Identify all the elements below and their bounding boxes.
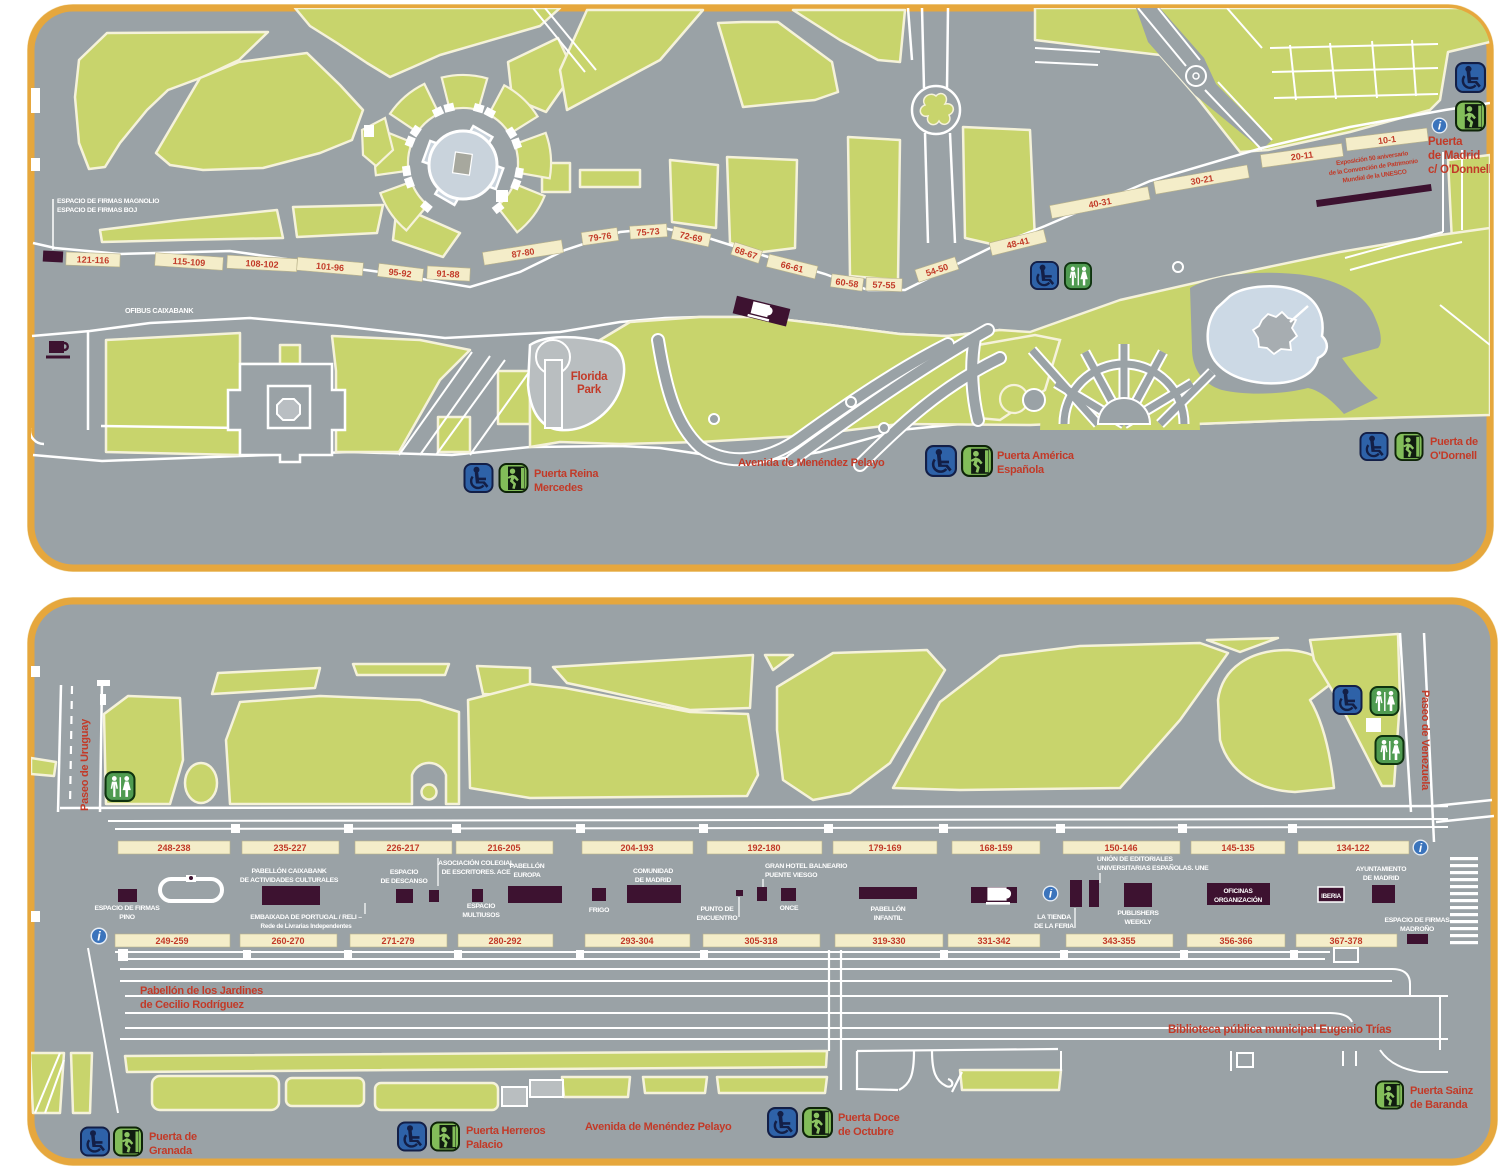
svg-text:Paseo de Venezuela: Paseo de Venezuela	[1419, 690, 1431, 791]
svg-text:Puerta Herreros: Puerta Herreros	[466, 1125, 546, 1137]
svg-text:DE MADRID: DE MADRID	[635, 877, 672, 884]
svg-text:226-217: 226-217	[386, 843, 419, 853]
svg-text:PABELLÓN CAIXABANK: PABELLÓN CAIXABANK	[251, 866, 326, 875]
svg-text:Florida: Florida	[571, 371, 608, 383]
svg-text:LA TIENDA: LA TIENDA	[1037, 914, 1071, 921]
svg-text:305-318: 305-318	[744, 936, 777, 946]
svg-text:179-169: 179-169	[868, 843, 901, 853]
svg-text:319-330: 319-330	[872, 936, 905, 946]
svg-text:280-292: 280-292	[488, 936, 521, 946]
svg-text:134-122: 134-122	[1336, 843, 1369, 853]
svg-text:c/ O'Donnell: c/ O'Donnell	[1428, 164, 1492, 176]
svg-text:de Baranda: de Baranda	[1410, 1099, 1469, 1111]
svg-text:192-180: 192-180	[747, 843, 780, 853]
svg-text:ESPACIO: ESPACIO	[390, 869, 418, 876]
svg-text:367-378: 367-378	[1329, 936, 1362, 946]
svg-text:ESPACIO DE FIRMAS BOJ: ESPACIO DE FIRMAS BOJ	[57, 207, 137, 214]
svg-text:DE LA FERIA: DE LA FERIA	[1034, 923, 1074, 930]
svg-text:DE ESCRITORES. ACE: DE ESCRITORES. ACE	[442, 869, 511, 876]
svg-text:DE DESCANSO: DE DESCANSO	[380, 878, 427, 885]
svg-text:ESPACIO DE FIRMAS: ESPACIO DE FIRMAS	[1384, 917, 1450, 924]
svg-text:EUROPA: EUROPA	[513, 872, 540, 879]
svg-text:ESPACIO: ESPACIO	[467, 903, 495, 910]
svg-text:Mercedes: Mercedes	[534, 482, 583, 494]
svg-text:293-304: 293-304	[620, 936, 653, 946]
svg-text:Park: Park	[577, 384, 602, 396]
svg-text:Puerta de: Puerta de	[1430, 436, 1478, 448]
svg-text:ONCE: ONCE	[780, 905, 799, 912]
svg-text:PUENTE VIESGO: PUENTE VIESGO	[765, 872, 817, 879]
svg-text:Puerta América: Puerta América	[997, 450, 1075, 462]
svg-text:OFIBUS CAIXABANK: OFIBUS CAIXABANK	[125, 306, 194, 315]
svg-text:121-116: 121-116	[77, 254, 110, 265]
svg-text:PUNTO DE: PUNTO DE	[701, 906, 735, 913]
svg-text:O'Dornell: O'Dornell	[1430, 450, 1477, 462]
svg-text:260-270: 260-270	[271, 936, 304, 946]
svg-text:75-73: 75-73	[636, 226, 660, 238]
svg-text:GRAN HOTEL BALNEARIO: GRAN HOTEL BALNEARIO	[765, 863, 847, 870]
svg-text:UNIVERSITARIAS ESPAÑOLAS. UNE: UNIVERSITARIAS ESPAÑOLAS. UNE	[1097, 863, 1209, 872]
svg-text:249-259: 249-259	[155, 936, 188, 946]
svg-text:PABELLÓN: PABELLÓN	[871, 904, 906, 913]
svg-text:Biblioteca pública municipal E: Biblioteca pública municipal Eugenio Trí…	[1168, 1024, 1391, 1036]
svg-text:168-159: 168-159	[979, 843, 1012, 853]
svg-text:271-279: 271-279	[381, 936, 414, 946]
svg-text:MADROÑO: MADROÑO	[1400, 924, 1434, 933]
svg-text:Paseo de Uruguay: Paseo de Uruguay	[79, 718, 91, 811]
svg-text:Puerta Doce: Puerta Doce	[838, 1112, 900, 1124]
svg-text:PINO: PINO	[119, 914, 135, 921]
svg-text:91-88: 91-88	[436, 268, 460, 279]
svg-text:ASOCIACIÓN COLEGIAL: ASOCIACIÓN COLEGIAL	[438, 858, 514, 867]
svg-text:ESPACIO DE FIRMAS MAGNOLIO: ESPACIO DE FIRMAS MAGNOLIO	[57, 198, 159, 205]
svg-text:UNIÓN DE EDITORIALES: UNIÓN DE EDITORIALES	[1097, 854, 1173, 863]
svg-text:216-205: 216-205	[487, 843, 520, 853]
svg-text:PUBLISHERS: PUBLISHERS	[1117, 910, 1159, 917]
svg-text:Puerta de: Puerta de	[149, 1131, 197, 1143]
svg-text:AYUNTAMIENTO: AYUNTAMIENTO	[1356, 866, 1407, 873]
svg-text:108-102: 108-102	[245, 258, 279, 270]
svg-text:343-355: 343-355	[1102, 936, 1135, 946]
svg-text:de Cecilio Rodríguez: de Cecilio Rodríguez	[140, 999, 245, 1011]
svg-text:DE MADRID: DE MADRID	[1363, 875, 1400, 882]
svg-text:Puerta Reina: Puerta Reina	[534, 468, 599, 480]
svg-text:Puerta Sainz: Puerta Sainz	[1410, 1085, 1474, 1097]
svg-text:235-227: 235-227	[273, 843, 306, 853]
svg-text:ORGANIZACIÓN: ORGANIZACIÓN	[1214, 895, 1262, 904]
svg-text:248-238: 248-238	[157, 843, 190, 853]
svg-text:Granada: Granada	[149, 1145, 193, 1157]
svg-text:356-366: 356-366	[1219, 936, 1252, 946]
svg-text:INFANTIL: INFANTIL	[874, 915, 903, 922]
svg-text:331-342: 331-342	[977, 936, 1010, 946]
svg-text:OFICINAS: OFICINAS	[1223, 888, 1253, 895]
svg-text:IBERIA: IBERIA	[1321, 893, 1342, 900]
svg-text:145-135: 145-135	[1221, 843, 1254, 853]
svg-text:ENCUENTRO: ENCUENTRO	[697, 915, 738, 922]
svg-text:57-55: 57-55	[872, 280, 895, 291]
svg-text:DE ACTIVIDADES CULTURALES: DE ACTIVIDADES CULTURALES	[240, 877, 339, 884]
svg-text:WEEKLY: WEEKLY	[1125, 919, 1153, 926]
svg-text:ESPACIO DE FIRMAS: ESPACIO DE FIRMAS	[94, 905, 160, 912]
svg-text:Palacio: Palacio	[466, 1139, 503, 1151]
svg-text:EMBAIXADA DE PORTUGAL / RELI –: EMBAIXADA DE PORTUGAL / RELI –	[250, 914, 362, 921]
svg-text:de Madrid: de Madrid	[1428, 150, 1480, 162]
svg-text:150-146: 150-146	[1104, 843, 1137, 853]
svg-text:PABELLÓN: PABELLÓN	[510, 861, 545, 870]
svg-text:FRIGO: FRIGO	[589, 907, 609, 914]
svg-text:Española: Española	[997, 464, 1045, 476]
svg-text:Avenida de Menéndez Pelayo: Avenida de Menéndez Pelayo	[738, 457, 885, 469]
svg-text:204-193: 204-193	[620, 843, 653, 853]
svg-text:Pabellón de los Jardines: Pabellón de los Jardines	[140, 985, 263, 997]
svg-text:Rede de Livrarias Independente: Rede de Livrarias Independentes	[261, 923, 353, 930]
svg-text:de Octubre: de Octubre	[838, 1126, 894, 1138]
svg-text:COMUNIDAD: COMUNIDAD	[633, 868, 673, 875]
svg-text:Avenida de Menéndez Pelayo: Avenida de Menéndez Pelayo	[585, 1121, 732, 1133]
svg-text:MULTIUSOS: MULTIUSOS	[462, 912, 500, 919]
svg-text:Puerta: Puerta	[1428, 136, 1463, 148]
